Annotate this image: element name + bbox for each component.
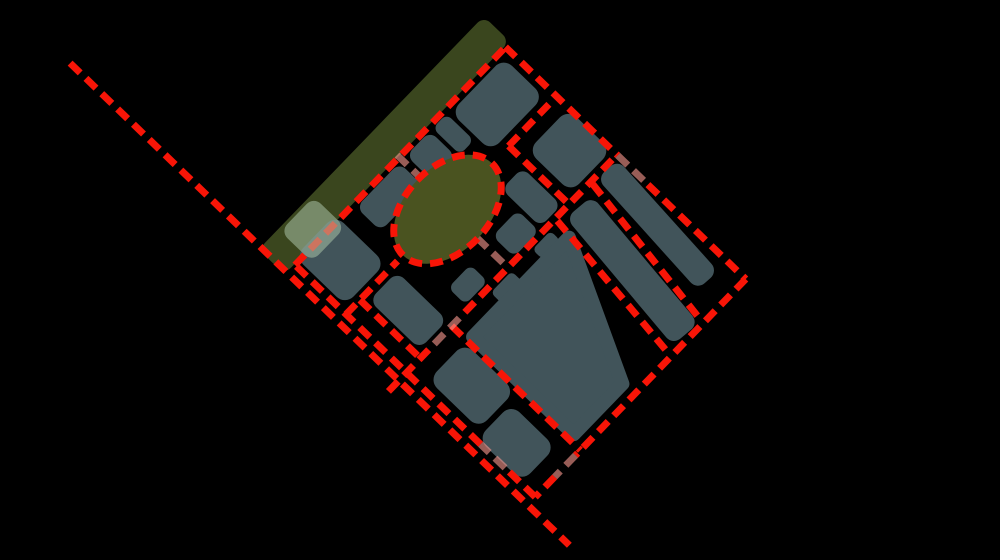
- road-dashed: [535, 477, 554, 497]
- city-block: [448, 265, 487, 305]
- city-block: [369, 272, 447, 349]
- map-canvas: [0, 0, 1000, 560]
- road-dashed-faded: [555, 455, 576, 477]
- rotated-city-grid: [60, 0, 793, 556]
- map-stage: [0, 0, 1000, 560]
